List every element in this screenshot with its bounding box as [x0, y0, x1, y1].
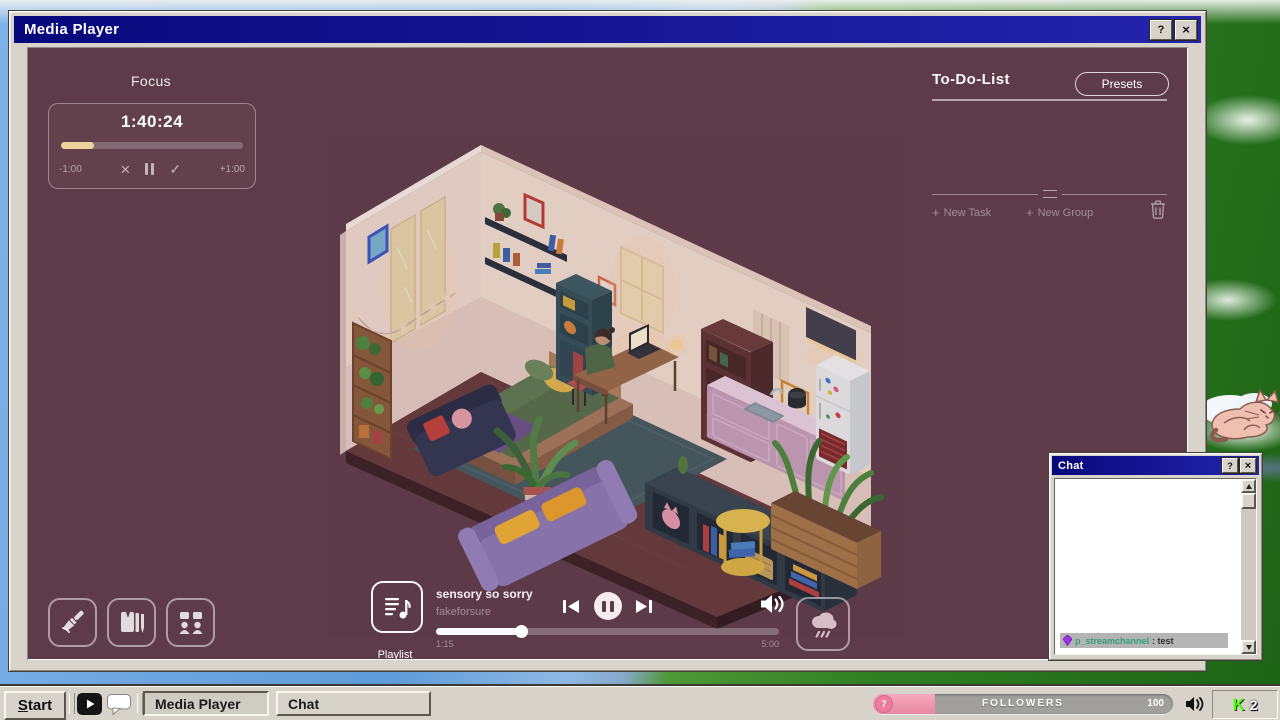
focus-progress-fill — [61, 142, 94, 149]
followers-total: 100 — [1147, 698, 1164, 709]
chat-titlebar[interactable]: Chat ? × — [1052, 456, 1259, 475]
quicklaunch-chat-button[interactable] — [106, 693, 134, 720]
pause-icon — [602, 601, 606, 612]
journal-icon — [118, 609, 145, 636]
scroll-down-button[interactable] — [1241, 640, 1256, 654]
rain-cloud-icon — [807, 609, 839, 639]
quicklaunch-handle[interactable] — [69, 693, 75, 714]
next-icon — [636, 599, 652, 614]
chat-message: p_streamchannel : test — [1060, 633, 1228, 648]
duration-time: 5:00 — [739, 639, 779, 649]
chat-help-button[interactable]: ? — [1222, 458, 1238, 473]
play-icon — [84, 698, 96, 710]
scroll-up-icon — [1246, 484, 1252, 489]
followers-label: FOLLOWERS — [873, 698, 1173, 709]
elapsed-time: 1:15 — [436, 639, 454, 649]
new-task-button[interactable]: + New Task — [932, 205, 991, 220]
seek-fill — [436, 628, 522, 635]
room-illustration — [327, 137, 907, 637]
community-button[interactable] — [166, 598, 215, 647]
paintbrush-icon — [59, 609, 86, 636]
speech-bubble-icon — [106, 693, 134, 716]
focus-controls: -1:00 × ✓ +1:00 — [59, 156, 245, 182]
focus-heading: Focus — [101, 73, 201, 89]
focus-pause-button[interactable] — [145, 163, 154, 175]
media-player-titlebar[interactable]: Media Player ? × — [14, 16, 1201, 43]
trash-icon — [1149, 199, 1167, 219]
song-artist: fakeforsure — [436, 606, 491, 618]
taskbar-volume-button[interactable] — [1185, 695, 1205, 718]
chat-title: Chat — [1055, 460, 1084, 472]
play-pause-button[interactable] — [594, 592, 622, 620]
chat-window: Chat ? × p_streamchannel : test — [1048, 452, 1263, 661]
chat-close-button[interactable]: × — [1240, 458, 1256, 473]
gem-badge-icon — [1063, 635, 1072, 646]
taskbar-button-chat[interactable]: Chat — [276, 691, 431, 716]
next-track-button[interactable] — [636, 599, 652, 619]
chat-username[interactable]: p_streamchannel — [1075, 636, 1149, 646]
plus-icon: + — [932, 205, 940, 220]
previous-track-button[interactable] — [563, 599, 579, 619]
song-title: sensory so sorry — [436, 587, 533, 601]
focus-timer-card: 1:40:24 -1:00 × ✓ +1:00 — [48, 103, 256, 189]
close-button[interactable]: × — [1175, 20, 1197, 40]
followers-progress: 7 FOLLOWERS 100 — [873, 694, 1173, 714]
media-player-window: Media Player ? × — [8, 10, 1207, 672]
volume-icon — [760, 593, 786, 615]
weather-button[interactable] — [796, 597, 850, 651]
focus-add-button[interactable]: +1:00 — [220, 164, 245, 175]
speaker-icon — [1185, 695, 1205, 713]
viewer-count: 2 — [1250, 697, 1258, 713]
todo-trash-button[interactable] — [1149, 199, 1167, 224]
focus-subtract-button[interactable]: -1:00 — [59, 164, 82, 175]
volume-button[interactable] — [760, 593, 786, 620]
kick-logo[interactable]: K — [1232, 695, 1244, 715]
chat-message-text: : test — [1152, 636, 1174, 646]
chat-scrollbar[interactable] — [1241, 479, 1256, 654]
todo-splitter[interactable] — [932, 190, 1167, 198]
quicklaunch-play-button[interactable] — [77, 693, 102, 715]
focus-cancel-button[interactable]: × — [120, 161, 130, 178]
help-button[interactable]: ? — [1150, 20, 1172, 40]
start-button[interactable]: Start — [4, 691, 66, 720]
chat-message-area[interactable]: p_streamchannel : test — [1054, 478, 1257, 655]
scroll-down-icon — [1246, 645, 1252, 650]
journal-button[interactable] — [107, 598, 156, 647]
scroll-thumb[interactable] — [1241, 493, 1256, 509]
new-group-button[interactable]: + New Group — [1026, 205, 1093, 220]
scroll-up-button[interactable] — [1241, 479, 1256, 493]
todo-heading: To-Do-List — [932, 71, 1010, 88]
focus-time: 1:40:24 — [49, 112, 255, 132]
plus-icon: + — [1026, 205, 1034, 220]
seek-slider[interactable] — [436, 628, 779, 635]
splitter-handle-icon[interactable] — [1043, 190, 1057, 198]
desktop: Media Player ? × — [0, 0, 1280, 720]
focus-progress-track — [61, 142, 243, 149]
system-tray: K 2 — [1212, 690, 1278, 719]
focus-complete-button[interactable]: ✓ — [169, 161, 181, 178]
desktop-cat-illustration — [1204, 382, 1280, 448]
seek-knob[interactable] — [515, 625, 528, 638]
customize-button[interactable] — [48, 598, 97, 647]
playlist-button[interactable] — [371, 581, 423, 633]
todo-rule — [932, 99, 1167, 101]
pause-icon — [610, 601, 614, 612]
presets-button[interactable]: Presets — [1075, 72, 1169, 96]
media-player-title: Media Player — [18, 21, 119, 38]
taskbar: Start Media Player Chat 7 FOLLOWERS 100 — [0, 686, 1280, 720]
playlist-label: Playlist — [361, 649, 429, 661]
previous-icon — [563, 599, 579, 614]
taskbar-button-media-player[interactable]: Media Player — [143, 691, 269, 716]
playlist-icon — [383, 593, 411, 621]
people-icon — [177, 610, 205, 636]
media-player-content: Focus 1:40:24 -1:00 × ✓ +1:00 To-Do-Li — [27, 47, 1188, 660]
